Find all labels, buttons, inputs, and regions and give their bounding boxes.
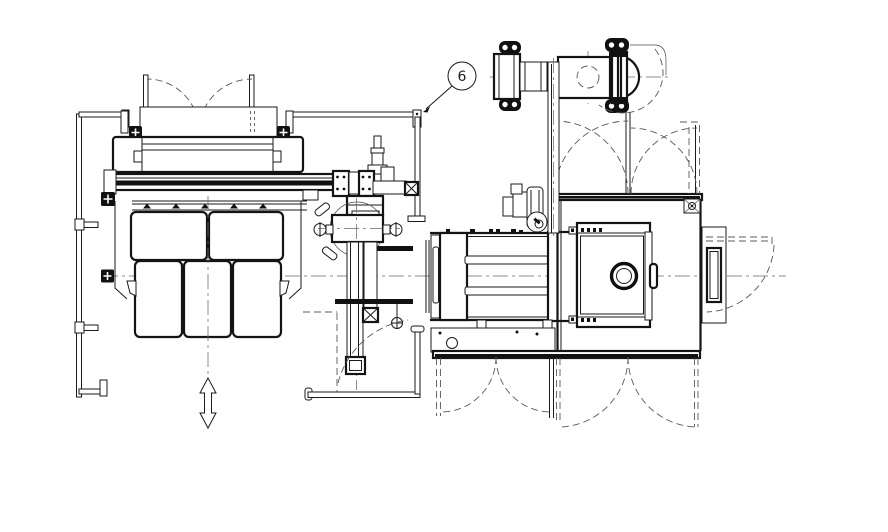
arm-x-box [363, 308, 378, 322]
travel-direction-arrow [200, 378, 216, 428]
transfer-carriage [333, 136, 418, 196]
pump-unit [489, 184, 547, 233]
upper-door-swings [550, 112, 700, 194]
clamp-x-box [405, 182, 418, 195]
plan-drawing: 6 [0, 0, 888, 532]
drawing-canvas: 6 [0, 0, 888, 532]
hood-cover [140, 107, 277, 138]
side-door-panel [702, 227, 774, 323]
balloon-number: 6 [458, 69, 467, 85]
motor-gearbox-unit [490, 38, 668, 113]
support-column [548, 58, 559, 236]
lower-door-swings [433, 351, 700, 427]
door-handle [650, 264, 657, 288]
corner-marker [684, 199, 700, 213]
right-machine-housing [556, 194, 702, 351]
balloon-callout: 6 [423, 62, 476, 113]
base-plate [431, 328, 555, 352]
panel-cabinets [131, 212, 283, 337]
infeed-machine [101, 75, 345, 428]
vertical-transfer-arm [303, 242, 413, 392]
central-machine-bed [426, 229, 577, 352]
